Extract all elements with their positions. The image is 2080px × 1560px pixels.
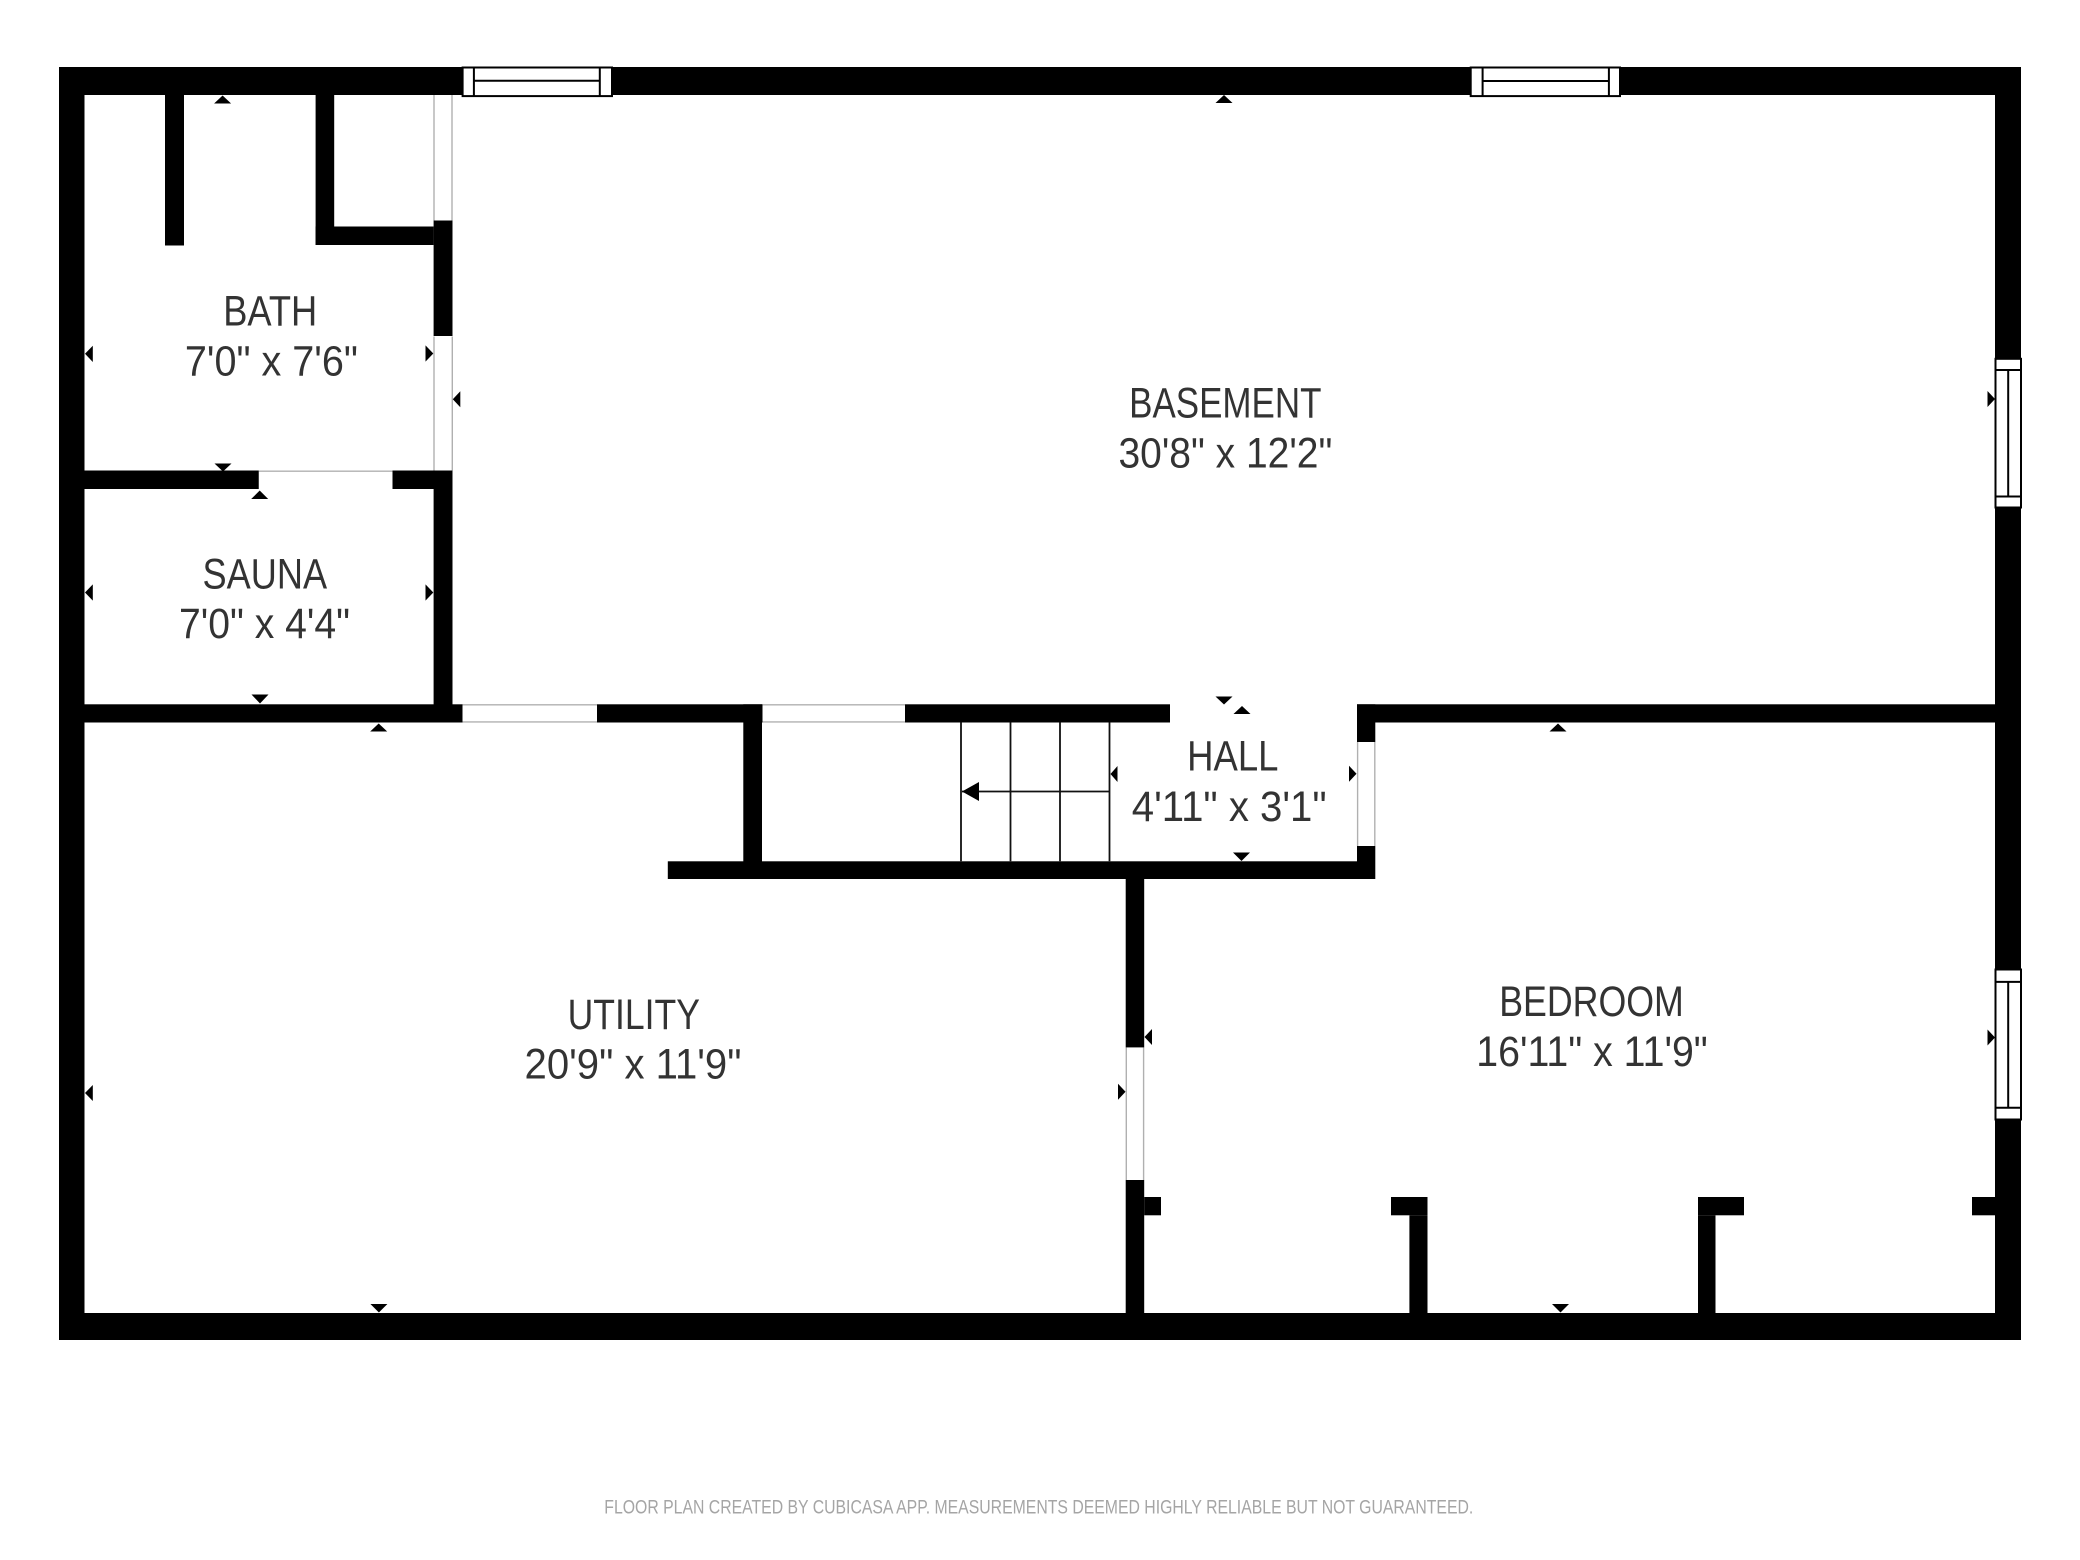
svg-text:30'8" x 12'2": 30'8" x 12'2"	[1119, 430, 1333, 478]
svg-text:BATH: BATH	[223, 287, 317, 335]
svg-text:SAUNA: SAUNA	[203, 551, 328, 599]
svg-text:FLOOR PLAN CREATED BY CUBICASA: FLOOR PLAN CREATED BY CUBICASA APP. MEAS…	[604, 1497, 1473, 1518]
svg-text:4'11" x 3'1": 4'11" x 3'1"	[1132, 783, 1327, 831]
svg-text:BASEMENT: BASEMENT	[1129, 380, 1321, 428]
svg-text:BEDROOM: BEDROOM	[1499, 978, 1684, 1026]
svg-text:UTILITY: UTILITY	[568, 991, 700, 1039]
svg-text:7'0" x 4'4": 7'0" x 4'4"	[179, 600, 350, 648]
svg-text:16'11" x 11'9": 16'11" x 11'9"	[1476, 1028, 1708, 1076]
svg-text:HALL: HALL	[1187, 733, 1278, 781]
svg-text:7'0" x 7'6": 7'0" x 7'6"	[185, 337, 358, 385]
svg-text:20'9" x 11'9": 20'9" x 11'9"	[525, 1041, 742, 1089]
